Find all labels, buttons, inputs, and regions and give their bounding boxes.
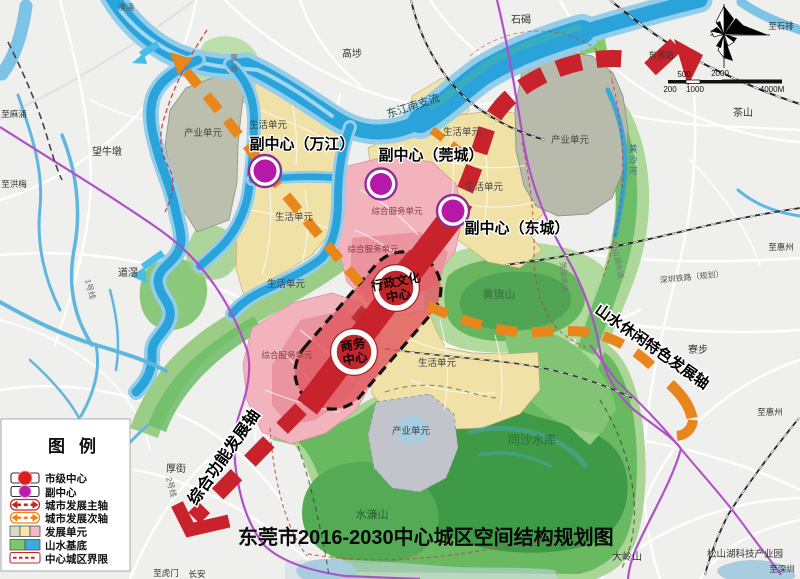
svg-text:城市发展主轴: 城市发展主轴 xyxy=(45,499,108,512)
svg-text:至麻涌: 至麻涌 xyxy=(1,109,27,119)
svg-text:生活单元: 生活单元 xyxy=(267,278,306,290)
svg-text:同沙水库: 同沙水库 xyxy=(508,432,556,447)
svg-text:长安: 长安 xyxy=(188,569,205,579)
svg-text:至虎门: 至虎门 xyxy=(153,568,179,578)
svg-text:水濂山: 水濂山 xyxy=(356,507,389,521)
svg-text:4000M: 4000M xyxy=(760,85,785,94)
svg-text:潢涌: 潢涌 xyxy=(118,2,134,12)
svg-text:黄旗山: 黄旗山 xyxy=(483,287,516,301)
svg-text:至惠州: 至惠州 xyxy=(757,407,783,417)
svg-text:副中心（东城）: 副中心（东城） xyxy=(464,219,569,237)
svg-text:2000: 2000 xyxy=(711,69,729,78)
svg-text:生活单元: 生活单元 xyxy=(418,357,457,369)
svg-text:综合服务单元: 综合服务单元 xyxy=(261,350,313,360)
svg-text:至石排: 至石排 xyxy=(768,21,794,31)
svg-text:综合服务单元: 综合服务单元 xyxy=(347,244,399,254)
svg-text:黄沙河: 黄沙河 xyxy=(628,143,637,176)
svg-text:500: 500 xyxy=(677,70,691,79)
svg-text:1000: 1000 xyxy=(686,85,704,94)
svg-text:产业单元: 产业单元 xyxy=(184,127,223,139)
svg-text:高埗: 高埗 xyxy=(342,47,362,60)
svg-text:至惠州: 至惠州 xyxy=(768,242,794,252)
svg-text:山水基底: 山水基底 xyxy=(45,539,87,552)
svg-text:望牛墩: 望牛墩 xyxy=(92,145,122,158)
svg-text:石碣: 石碣 xyxy=(511,14,531,26)
svg-text:200: 200 xyxy=(663,85,677,94)
svg-text:图例: 图例 xyxy=(48,436,110,456)
svg-text:产业单元: 产业单元 xyxy=(392,425,431,437)
svg-text:副中心（莞城）: 副中心（莞城） xyxy=(378,146,483,164)
svg-text:市级中心: 市级中心 xyxy=(45,472,87,485)
svg-text:厚街: 厚街 xyxy=(166,462,186,475)
svg-text:茶山: 茶山 xyxy=(733,106,753,119)
svg-text:生活单元: 生活单元 xyxy=(443,126,482,138)
svg-text:生活单元: 生活单元 xyxy=(465,181,504,193)
svg-text:至深圳: 至深圳 xyxy=(769,564,795,574)
svg-text:生活单元: 生活单元 xyxy=(275,211,314,223)
svg-text:东莞站: 东莞站 xyxy=(648,50,674,60)
svg-text:至洪梅: 至洪梅 xyxy=(1,179,27,189)
svg-text:城市发展次轴: 城市发展次轴 xyxy=(45,512,108,525)
svg-text:综合服务单元: 综合服务单元 xyxy=(371,206,423,216)
svg-text:东莞市2016-2030中心城区空间结构规划图: 东莞市2016-2030中心城区空间结构规划图 xyxy=(238,525,614,549)
svg-text:中心城区界限: 中心城区界限 xyxy=(45,553,108,566)
svg-text:大岭山: 大岭山 xyxy=(612,550,642,563)
svg-text:副中心（万江）: 副中心（万江） xyxy=(249,135,354,153)
svg-text:道滘: 道滘 xyxy=(118,266,138,279)
svg-text:产业单元: 产业单元 xyxy=(551,134,590,146)
svg-text:发展单元: 发展单元 xyxy=(44,526,87,539)
svg-text:生活单元: 生活单元 xyxy=(249,119,288,131)
svg-text:副中心: 副中心 xyxy=(45,486,77,499)
svg-text:松山湖科技产业园: 松山湖科技产业园 xyxy=(707,548,783,560)
svg-text:寮步: 寮步 xyxy=(688,343,708,356)
